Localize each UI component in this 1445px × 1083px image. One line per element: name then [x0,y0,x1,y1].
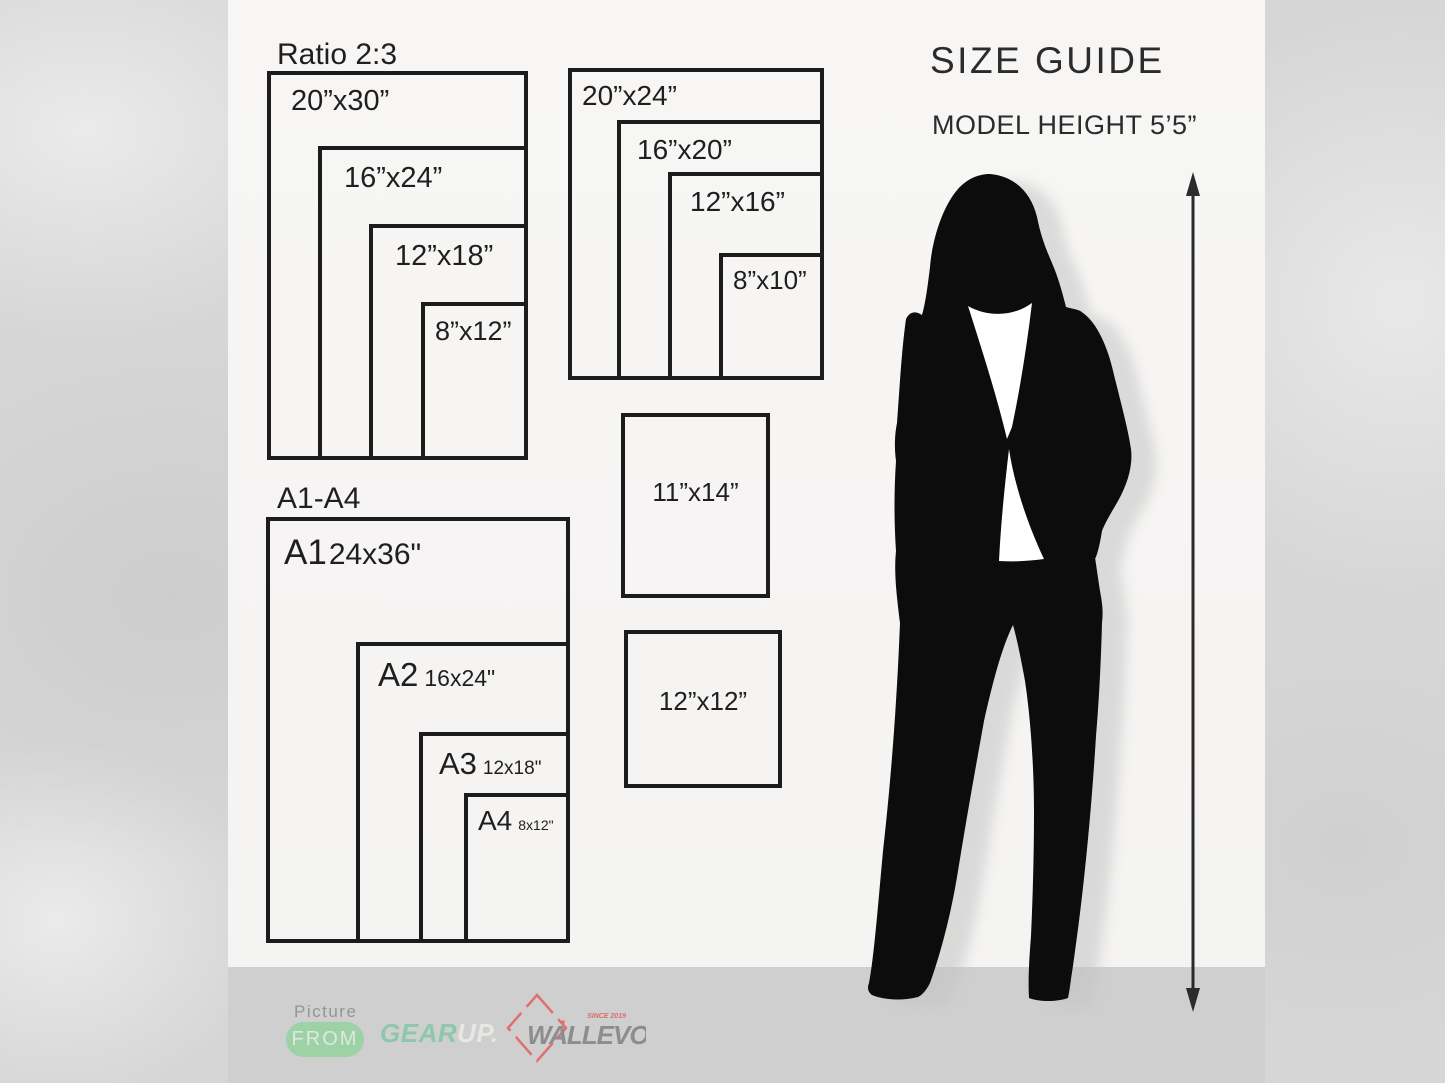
wallevo-logo: SINCE 2019 WALLEVO [506,992,646,1064]
size-label-12x16: 12”x16” [690,186,785,218]
from-badge-text: FROM [292,1028,359,1051]
size-label-11x14: 11”x14” [625,477,766,508]
a4-size: 8x12" [518,817,553,833]
frame-8x12: 8”x12” [421,302,528,460]
a4-code: A4 [478,805,512,837]
a1-code: A1 [284,533,327,573]
a4-label: A4 8x12" [478,805,554,837]
frame-a4: A4 8x12" [464,793,570,943]
frame-11x14: 11”x14” [621,413,770,598]
gearup-logo-up: UP. [457,1018,499,1048]
a-series-heading: A1-A4 [277,482,360,516]
a1-size: 24x36" [329,538,421,572]
gearup-logo: GEARUP. [380,1018,499,1049]
white-panel: Ratio 2:3 20”x30” 16”x24” 12”x18” 8”x12”… [228,0,1265,1083]
height-arrow-icon [1178,168,1208,1016]
from-badge: FROM [286,1022,364,1057]
size-label-12x12: 12”x12” [628,686,778,717]
size-label-8x10: 8”x10” [733,265,807,296]
size-label-16x24: 16”x24” [344,162,442,195]
size-label-20x30: 20”x30” [291,85,389,118]
a2-size: 16x24" [424,665,495,692]
size-label-12x18: 12”x18” [395,240,493,273]
a3-label: A3 12x18" [439,746,541,782]
picture-from-label: Picture [294,1002,357,1022]
size-label-16x20: 16”x20” [637,134,732,166]
wallevo-since-text: SINCE 2019 [587,1013,626,1020]
size-guide-image: Ratio 2:3 20”x30” 16”x24” 12”x18” 8”x12”… [0,0,1445,1083]
page-title: SIZE GUIDE [930,40,1165,82]
model-height-label: MODEL HEIGHT 5’5” [932,110,1197,141]
a3-code: A3 [439,746,477,782]
frame-12x12: 12”x12” [624,630,782,788]
a1-label: A1 24x36" [284,533,421,573]
model-silhouette-icon [850,161,1170,1017]
a2-code: A2 [378,656,418,694]
a2-label: A2 16x24" [378,656,495,694]
ratio-group-heading: Ratio 2:3 [277,38,397,72]
frame-8x10: 8”x10” [719,253,824,380]
wallevo-brand-text: WALLEVO [527,1020,646,1050]
size-label-20x24: 20”x24” [582,80,677,112]
a3-size: 12x18" [483,758,542,780]
gearup-logo-gear: GEAR [380,1018,457,1048]
size-label-8x12: 8”x12” [435,316,512,347]
